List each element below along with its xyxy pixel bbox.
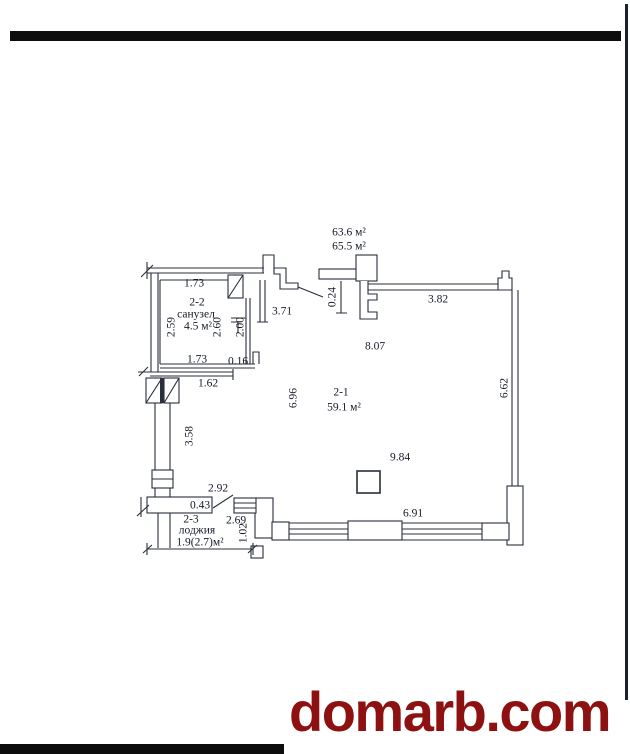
- room-id-bathroom: 2-2: [189, 297, 204, 309]
- room-area-loggia: 1.9(2.7)м²: [176, 537, 223, 549]
- dim-label: 1.02: [238, 523, 250, 543]
- dim-label: 3.58: [184, 426, 196, 446]
- dim-label: 1.73: [184, 278, 204, 290]
- wall-bottom-windows: [251, 498, 509, 558]
- dim-label: 2.00: [235, 317, 247, 337]
- wall-right: [507, 290, 523, 545]
- column-icon: [357, 471, 380, 493]
- room-id-main: 2-1: [333, 387, 348, 399]
- dim-label: 8.07: [365, 341, 385, 353]
- wall-top-right: [368, 271, 512, 290]
- dim-label: 6.62: [499, 378, 511, 398]
- watermark-logo: domarb.com: [289, 684, 610, 740]
- door-jamb-top: [274, 268, 298, 289]
- dim-label: 1.73: [187, 354, 207, 366]
- wall-left: [138, 273, 179, 497]
- dim-label: 0.24: [327, 287, 339, 307]
- loggia-door-swing-icon: [213, 495, 233, 508]
- entry-door-swing-icon: [298, 287, 323, 297]
- dim-label: 3.71: [272, 306, 292, 318]
- dim-label: 3.82: [428, 294, 448, 306]
- loggia-window-icon: [234, 498, 256, 513]
- dim-label: 2.92: [208, 483, 228, 495]
- dim-label: 0.43: [190, 500, 210, 512]
- room-name-loggia: лоджия: [179, 525, 215, 537]
- dim-label: 2.59: [166, 317, 178, 337]
- dim-label: 6.96: [288, 388, 300, 408]
- dim-label: 2.60: [212, 317, 224, 337]
- scanned-floorplan-page: 63.6 м² 65.5 м² 1.73 2-2 санузел 4.5 м² …: [0, 0, 630, 754]
- dim-label: 9.84: [390, 452, 410, 464]
- floorplan-drawing: [0, 0, 630, 754]
- room-area-main: 59.1 м²: [327, 402, 361, 414]
- room-name-bathroom: санузел: [177, 309, 215, 321]
- room-area-bathroom: 4.5 м²: [184, 321, 212, 333]
- dim-label: 6.91: [403, 508, 423, 520]
- total-area-upper: 63.6 м²: [332, 227, 366, 239]
- wall-top-left: [141, 255, 274, 279]
- total-area-lower: 65.5 м²: [332, 241, 366, 253]
- dim-label: 1.62: [198, 378, 218, 390]
- dim-label: 0.16: [228, 356, 248, 368]
